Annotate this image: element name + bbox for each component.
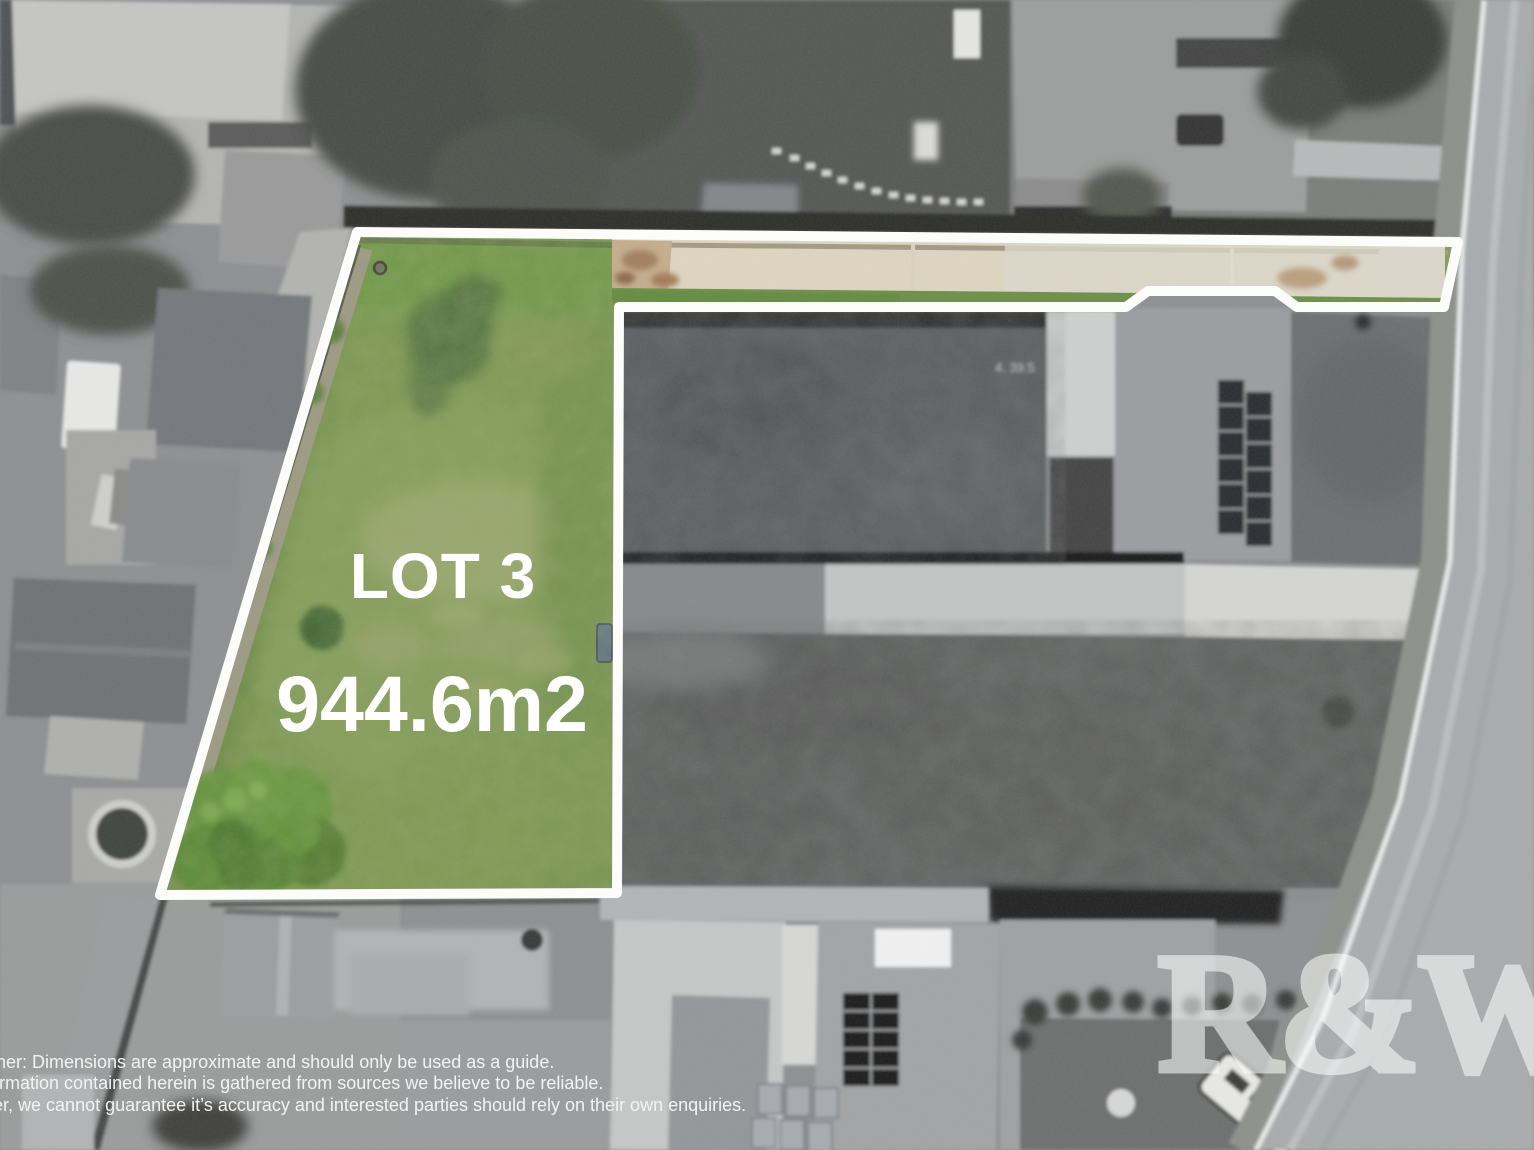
svg-text:R&W: R&W xyxy=(1158,919,1534,1107)
svg-text:However, we cannot guarantee i: However, we cannot guarantee it’s accura… xyxy=(0,1095,746,1115)
svg-text:LOT 3: LOT 3 xyxy=(350,540,536,612)
svg-text:Disclaimer: Dimensions are app: Disclaimer: Dimensions are approximate a… xyxy=(0,1052,554,1072)
svg-text:944.6m2: 944.6m2 xyxy=(276,659,588,748)
svg-text:The information contained here: The information contained herein is gath… xyxy=(0,1073,603,1093)
